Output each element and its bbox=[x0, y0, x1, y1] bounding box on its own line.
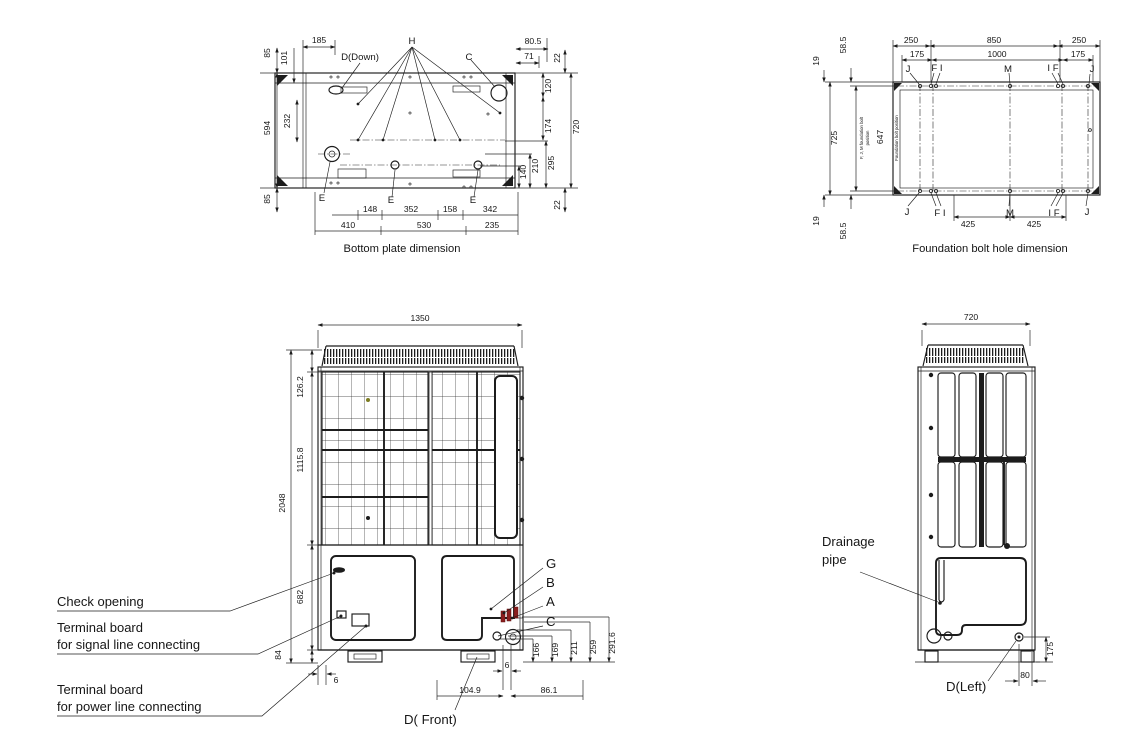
dim-250-right: 250 bbox=[1072, 35, 1087, 45]
dim-850: 850 bbox=[987, 35, 1002, 45]
dim-1115-8: 1115.8 bbox=[295, 447, 305, 472]
bottom-plate-leaders bbox=[324, 47, 501, 197]
left-body bbox=[915, 345, 1040, 662]
dim-720: 720 bbox=[571, 120, 581, 135]
side-note-line1: F, J, M foundation bolt bbox=[859, 116, 864, 159]
dim-175-left: 175 bbox=[910, 49, 925, 59]
dim-185: 185 bbox=[312, 35, 327, 45]
dim-352: 352 bbox=[404, 204, 419, 214]
signal-board-label-1: Terminal board bbox=[57, 620, 143, 635]
engineering-drawing-sheet: 85 101 185 D(Down) H C 80.5 71 22 120 17… bbox=[0, 0, 1122, 738]
dim-232: 232 bbox=[282, 114, 292, 129]
dim-169: 169 bbox=[550, 643, 560, 658]
foundation-caption: Foundation bolt hole dimension bbox=[912, 243, 1068, 255]
left-leaders bbox=[860, 572, 1016, 681]
dim-291-6: 291.6 bbox=[607, 632, 617, 654]
dim-126-2: 126.2 bbox=[295, 376, 305, 398]
label-e-left: E bbox=[319, 193, 325, 204]
dim-148: 148 bbox=[363, 204, 378, 214]
label-j-bl: J bbox=[905, 207, 910, 218]
dim-720: 720 bbox=[964, 312, 979, 322]
dim-295: 295 bbox=[546, 156, 556, 171]
dim-84: 84 bbox=[273, 650, 283, 660]
dim-425-left: 425 bbox=[961, 219, 976, 229]
fastener-dot bbox=[366, 398, 370, 402]
dim-594: 594 bbox=[262, 121, 272, 136]
power-terminal-board bbox=[352, 614, 369, 626]
dim-682: 682 bbox=[295, 590, 305, 605]
dim-211: 211 bbox=[569, 641, 579, 655]
label-c: C bbox=[466, 52, 473, 63]
dim-85-top: 85 bbox=[262, 48, 272, 58]
dim-647: 647 bbox=[875, 130, 885, 145]
dim-1000: 1000 bbox=[987, 49, 1006, 59]
drawing-canvas: 85 101 185 D(Down) H C 80.5 71 22 120 17… bbox=[0, 0, 1122, 738]
power-board-label-1: Terminal board bbox=[57, 682, 143, 697]
dim-235: 235 bbox=[485, 220, 500, 230]
side-note-line2: position bbox=[865, 130, 870, 145]
label-j-tl: J bbox=[906, 64, 911, 75]
dim-166: 166 bbox=[531, 643, 541, 658]
dim-250-left: 250 bbox=[904, 35, 919, 45]
dim-158: 158 bbox=[443, 204, 458, 214]
bottom-plate-drawing: 85 101 185 D(Down) H C 80.5 71 22 120 17… bbox=[260, 35, 581, 255]
inner-note: Foundation bolt position bbox=[894, 115, 899, 161]
dim-22-bottom: 22 bbox=[552, 200, 562, 210]
drainage-label-2: pipe bbox=[822, 552, 847, 567]
dim-175: 175 bbox=[1045, 642, 1055, 657]
dim-530: 530 bbox=[417, 220, 432, 230]
dim-22-top: 22 bbox=[552, 53, 562, 63]
dim-58-5-top: 58.5 bbox=[838, 36, 848, 53]
front-body bbox=[318, 346, 524, 662]
foundation-bolt-left bbox=[1015, 633, 1023, 641]
dim-425-right: 425 bbox=[1027, 219, 1042, 229]
dim-210: 210 bbox=[530, 159, 540, 174]
louver-panels bbox=[938, 373, 1026, 549]
left-view-drawing: 720 Drainage pipe 175 80 D(Left) bbox=[822, 312, 1055, 694]
foundation-leaders bbox=[908, 73, 1090, 206]
drainage-label-1: Drainage bbox=[822, 534, 875, 549]
dim-175-right: 175 bbox=[1071, 49, 1086, 59]
label-a: A bbox=[546, 594, 555, 609]
left-dim-lines bbox=[922, 324, 1053, 686]
dim-725: 725 bbox=[829, 131, 839, 146]
dim-2048: 2048 bbox=[277, 493, 287, 512]
label-j-tr: J bbox=[1090, 64, 1095, 75]
foundation-texts: 250 850 250 175 1000 175 J F I M I F J 1… bbox=[811, 35, 1095, 255]
bottom-plate-texts: 85 101 185 D(Down) H C 80.5 71 22 120 17… bbox=[262, 35, 581, 255]
dim-6-right: 6 bbox=[505, 660, 510, 670]
dim-6-left: 6 bbox=[334, 675, 339, 685]
dim-19-top: 19 bbox=[811, 56, 821, 66]
dim-80: 80 bbox=[1020, 670, 1030, 680]
dim-1350: 1350 bbox=[410, 313, 429, 323]
label-fi-top: F I bbox=[931, 63, 942, 74]
dim-410: 410 bbox=[341, 220, 356, 230]
power-board-label-2: for power line connecting bbox=[57, 699, 202, 714]
label-e-right: E bbox=[470, 195, 476, 206]
left-caption: D(Left) bbox=[946, 679, 986, 694]
drainage-pipe-shape bbox=[939, 560, 944, 602]
dim-19-bottom: 19 bbox=[811, 216, 821, 226]
dim-104-9: 104.9 bbox=[459, 685, 481, 695]
dim-71: 71 bbox=[524, 51, 534, 61]
signal-board-label-2: for signal line connecting bbox=[57, 637, 200, 652]
label-e-mid: E bbox=[388, 195, 394, 206]
label-if-top: I F bbox=[1047, 63, 1058, 74]
label-c: C bbox=[546, 614, 556, 629]
bolt-holes bbox=[918, 84, 1091, 192]
check-opening-label: Check opening bbox=[57, 594, 144, 609]
left-access-panel bbox=[936, 558, 1026, 635]
label-j-br: J bbox=[1085, 207, 1090, 218]
dim-259: 259 bbox=[588, 640, 598, 655]
dim-101: 101 bbox=[279, 51, 289, 66]
dim-120: 120 bbox=[543, 79, 553, 94]
label-m-top: M bbox=[1004, 64, 1012, 75]
foundation-drawing: 250 850 250 175 1000 175 J F I M I F J 1… bbox=[811, 35, 1100, 255]
bottom-plate-dim-lines bbox=[260, 38, 578, 235]
label-if-bottom: I F bbox=[1048, 208, 1059, 219]
dim-342: 342 bbox=[483, 204, 498, 214]
bottom-plate-features bbox=[318, 76, 507, 188]
label-g: G bbox=[546, 556, 556, 571]
label-h: H bbox=[409, 36, 416, 47]
dim-140: 140 bbox=[518, 165, 528, 180]
foundation-outline bbox=[893, 82, 1100, 195]
label-m-bottom: M bbox=[1006, 208, 1014, 219]
label-fi-bottom: F I bbox=[934, 208, 945, 219]
bottom-plate-caption: Bottom plate dimension bbox=[344, 243, 461, 255]
front-caption: D( Front) bbox=[404, 712, 457, 727]
dim-58-5-bottom: 58.5 bbox=[838, 222, 848, 239]
label-b: B bbox=[546, 575, 555, 590]
dim-86-1: 86.1 bbox=[541, 685, 558, 695]
dim-80-5: 80.5 bbox=[525, 36, 542, 46]
dim-174: 174 bbox=[543, 119, 553, 134]
front-view-drawing: 1350 126.2 1115.8 2048 682 84 Check open… bbox=[57, 313, 617, 727]
label-d-down: D(Down) bbox=[341, 52, 379, 63]
dim-85-bottom: 85 bbox=[262, 194, 272, 204]
